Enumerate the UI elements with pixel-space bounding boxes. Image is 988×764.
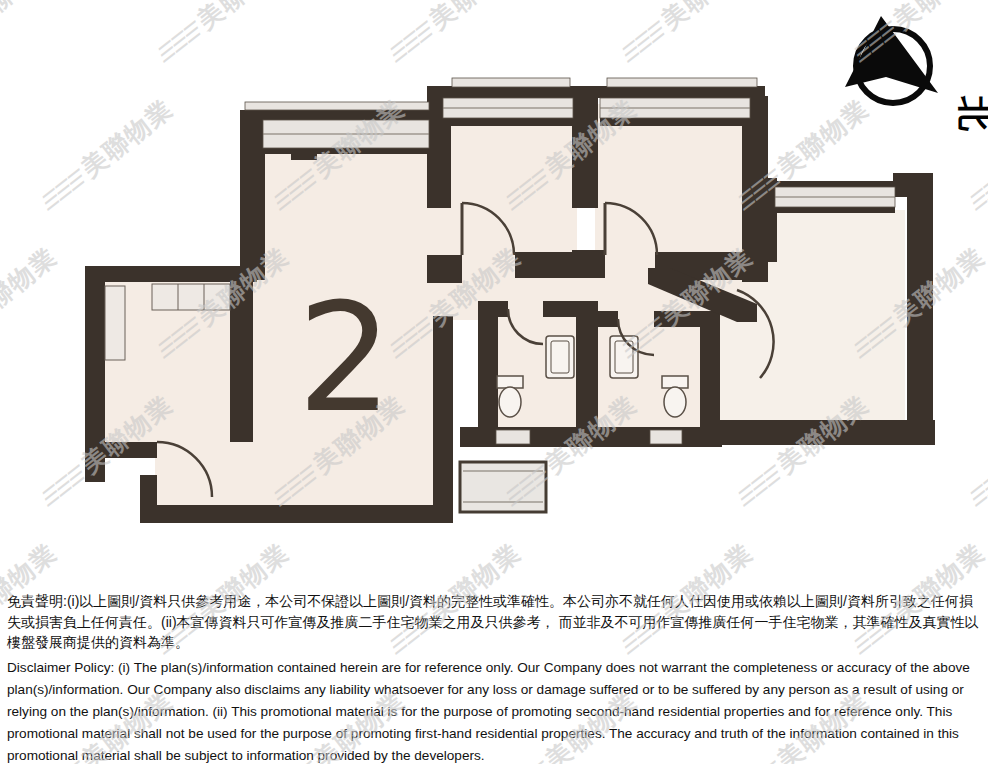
toilet-icon — [497, 376, 523, 417]
disclaimer-section: 免責聲明:(i)以上圖則/資料只供參考用途，本公司不保證以上圖則/資料的完整性或… — [7, 591, 983, 764]
toilet-icon — [662, 376, 688, 417]
north-compass: 北 — [845, 16, 988, 132]
window — [607, 78, 757, 87]
north-label: 北 — [955, 95, 988, 132]
floor-plan-image: 2 北 — [0, 0, 988, 570]
unit-number-label: 2 — [297, 271, 392, 445]
bedroom-3 — [595, 104, 747, 258]
bedroom-2 — [445, 104, 577, 256]
sink-icon — [610, 336, 638, 378]
window — [650, 430, 682, 444]
disclaimer-chinese: 免責聲明:(i)以上圖則/資料只供參考用途，本公司不保證以上圖則/資料的完整性或… — [7, 591, 983, 653]
floor-plan-page: { "plan": { "unit_number": "2", "compass… — [0, 0, 988, 764]
window — [245, 102, 429, 110]
floor-plan-svg: 2 北 — [0, 0, 988, 570]
sink-icon — [546, 336, 574, 378]
ac-platform — [460, 462, 546, 512]
window — [452, 78, 570, 87]
window — [496, 430, 530, 444]
entrance-hall — [155, 440, 255, 507]
disclaimer-english: Disclaimer Policy: (i) The plan(s)/infor… — [7, 657, 983, 764]
